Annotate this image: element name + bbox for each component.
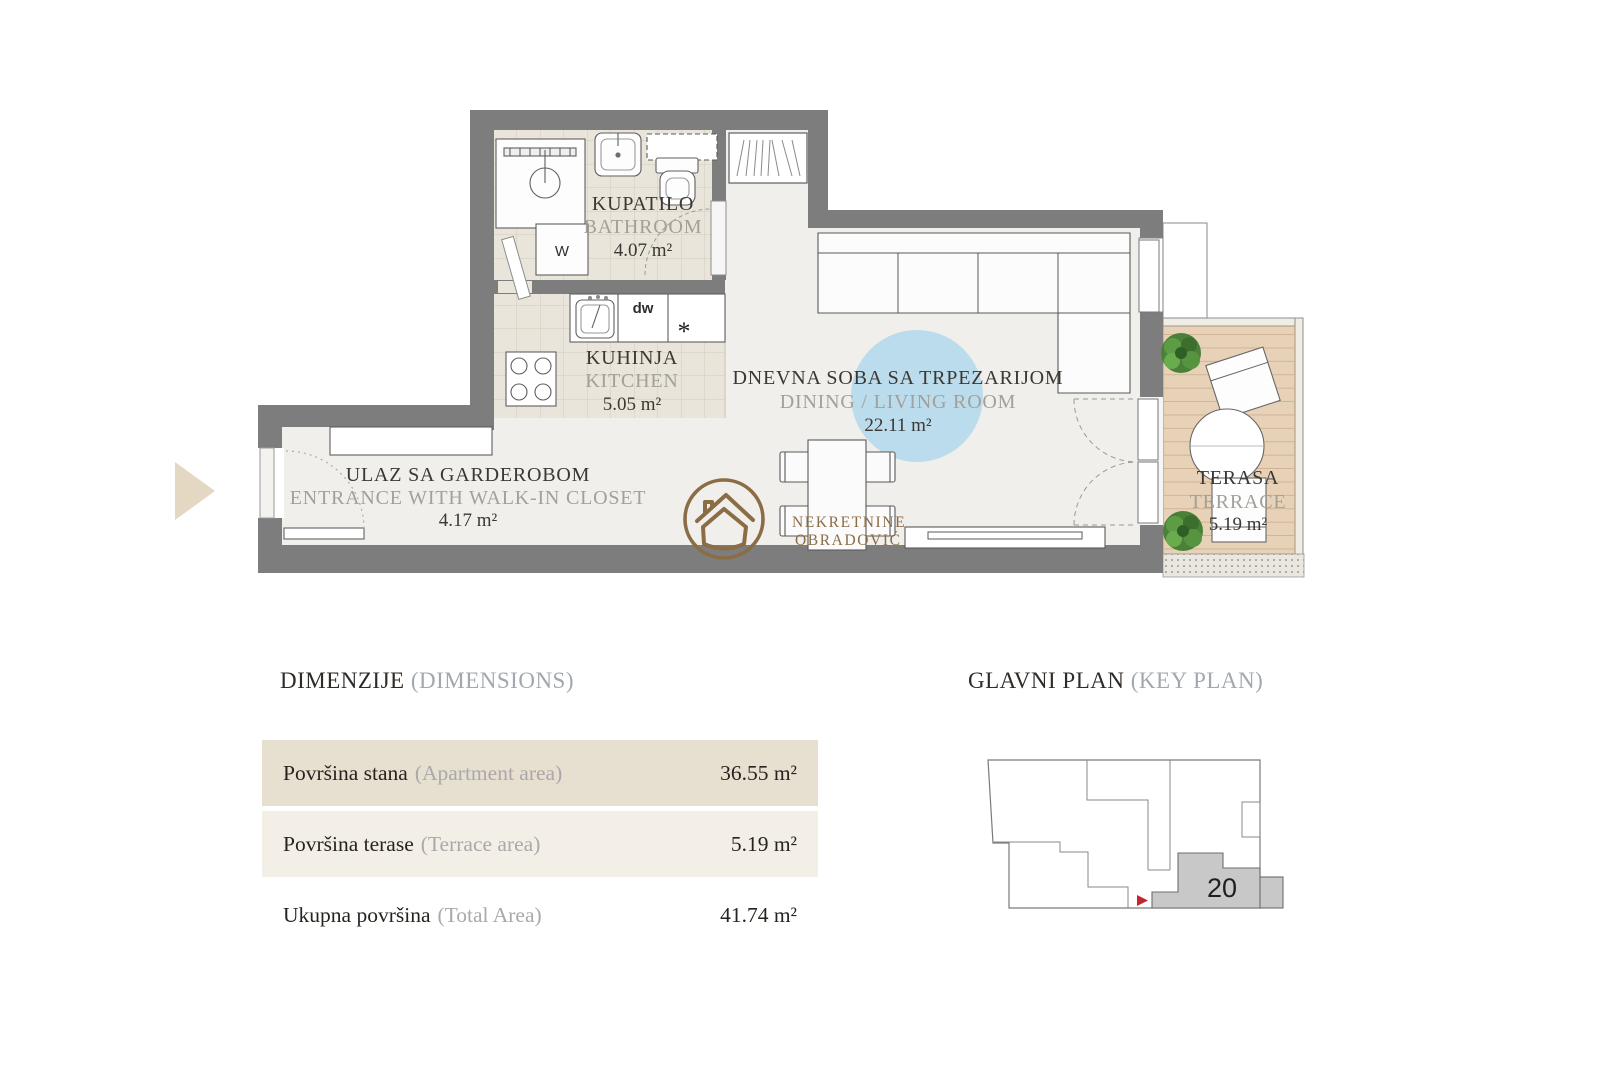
prev-next-arrow-icon[interactable] [175, 462, 215, 520]
entrance-door-opening [260, 448, 274, 518]
floor-plan: W [0, 0, 1600, 620]
row-label-sr: Površina stana [283, 761, 408, 786]
wardrobe [729, 133, 807, 183]
row-label-en: (Total Area) [438, 903, 542, 928]
row-label-en: (Apartment area) [415, 761, 562, 786]
bathroom-name-en: BATHROOM [584, 216, 703, 238]
terrace-area: 5.19 m² [1209, 514, 1268, 535]
key-plan-title-sr: GLAVNI PLAN [968, 668, 1125, 693]
washer-label: W [555, 243, 570, 260]
wall-top-bathroom [470, 110, 828, 130]
table-row-terrace-area: Površina terase (Terrace area) 5.19 m² [262, 811, 818, 877]
entrance-door-leaf [284, 528, 364, 539]
dishwasher-label: dw [633, 300, 654, 317]
entry-closet [330, 427, 492, 455]
neighbor-outline [1163, 223, 1207, 318]
key-plan-title-en: (KEY PLAN) [1131, 668, 1264, 693]
row-value: 41.74 m² [720, 903, 797, 928]
row-label-sr: Površina terase [283, 832, 414, 857]
page: W [0, 0, 1600, 1067]
plant [1163, 511, 1203, 551]
kitchen-name: KUHINJA [586, 347, 678, 369]
bathroom-door [711, 201, 726, 275]
kitchen-area: 5.05 m² [603, 394, 662, 415]
wall-left-upper [470, 110, 494, 430]
entrance-name-en: ENTRANCE WITH WALK-IN CLOSET [290, 487, 647, 509]
living-name-en: DINING / LIVING ROOM [780, 391, 1017, 413]
wall-entrance-top [258, 405, 494, 427]
key-plan: 20 [960, 740, 1310, 925]
entrance-area: 4.17 m² [439, 510, 498, 531]
tv [928, 532, 1082, 539]
bathroom-cabinet [647, 134, 717, 160]
terrace-railing-top [1163, 318, 1303, 326]
dimensions-title: DIMENZIJE (DIMENSIONS) [280, 668, 574, 694]
keyplan-unit-extension [1260, 877, 1283, 908]
dimensions-title-en: (DIMENSIONS) [411, 668, 574, 693]
plant [1161, 333, 1201, 373]
bathroom-area: 4.07 m² [614, 240, 673, 261]
key-plan-title: GLAVNI PLAN (KEY PLAN) [968, 668, 1263, 694]
terrace-name: TERASA [1197, 467, 1280, 489]
radiator [1139, 240, 1159, 312]
row-value: 36.55 m² [720, 761, 797, 786]
wall-living-top [808, 210, 1163, 228]
table-row-total-area: Ukupna površina (Total Area) 41.74 m² [262, 882, 818, 948]
terrace-door-leaf-bottom [1138, 462, 1158, 523]
keyplan-unit-number: 20 [1207, 873, 1237, 903]
row-label-sr: Ukupna površina [283, 903, 431, 928]
terrace-name-en: TERRACE [1190, 491, 1287, 513]
bathroom-name: KUPATILO [592, 193, 694, 215]
freezer-star-label: * [678, 317, 691, 346]
table-row-apartment-area: Površina stana (Apartment area) 36.55 m² [262, 740, 818, 806]
living-name: DNEVNA SOBA SA TRPEZARIJOM [732, 367, 1063, 389]
row-value: 5.19 m² [731, 832, 797, 857]
dimensions-title-sr: DIMENZIJE [280, 668, 405, 693]
row-label-en: (Terrace area) [421, 832, 541, 857]
dimensions-table: Površina stana (Apartment area) 36.55 m²… [262, 740, 818, 953]
living-area: 22.11 m² [864, 415, 932, 436]
terrace-railing-right [1295, 318, 1303, 558]
entrance-name: ULAZ SA GARDEROBOM [346, 464, 590, 486]
logo-text-line2: OBRADOVIĆ [795, 532, 902, 549]
logo-text-line1: NEKRETNINE [792, 514, 906, 531]
kitchen-name-en: KITCHEN [585, 370, 678, 392]
wall-bottom [258, 545, 1163, 573]
terrace-door-leaf-top [1138, 399, 1158, 460]
